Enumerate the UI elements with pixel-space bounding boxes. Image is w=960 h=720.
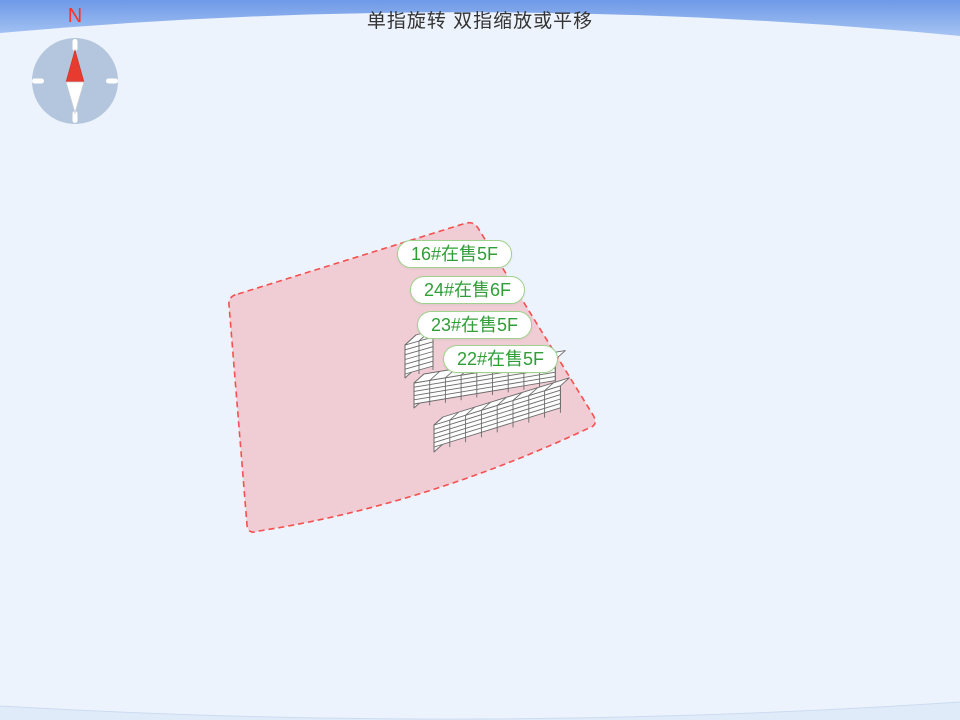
compass[interactable] — [32, 38, 118, 124]
compass-tick-east — [106, 79, 118, 84]
building-label-23[interactable]: 23#在售5F — [417, 311, 532, 339]
ground-near-edge-band — [0, 702, 960, 720]
gesture-hint: 单指旋转 双指缩放或平移 — [367, 6, 593, 33]
building-label-24[interactable]: 24#在售6F — [410, 276, 525, 304]
map-canvas[interactable]: 单指旋转 双指缩放或平移 N 16#在售5F 24#在售6F 23#在售5F 2… — [0, 0, 960, 720]
building-label-16[interactable]: 16#在售5F — [397, 240, 512, 268]
compass-tick-west — [32, 79, 44, 84]
compass-north-label: N — [63, 5, 87, 28]
building-label-22[interactable]: 22#在售5F — [443, 345, 558, 373]
